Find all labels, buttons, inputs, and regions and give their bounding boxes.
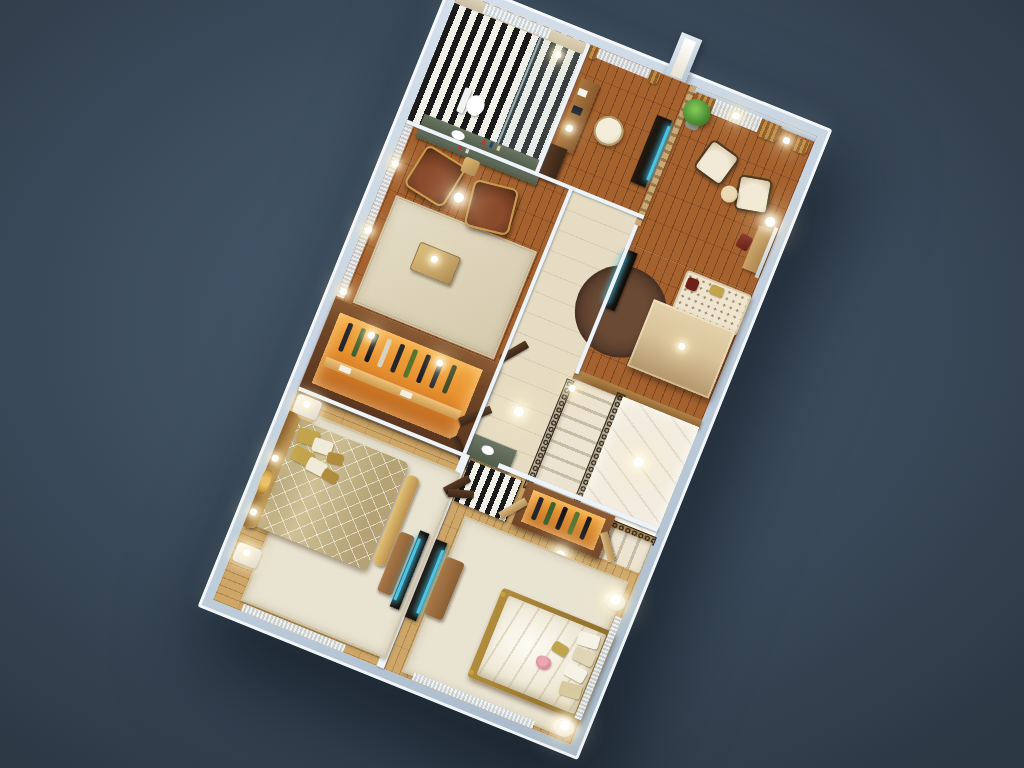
floor-plan [198, 0, 833, 760]
scene-background [0, 0, 1024, 768]
bedroom2-door-2 [448, 489, 474, 499]
wall-stub-inner-face [670, 38, 696, 80]
cream-armchair-2 [733, 174, 773, 215]
plan-interior [213, 0, 817, 744]
